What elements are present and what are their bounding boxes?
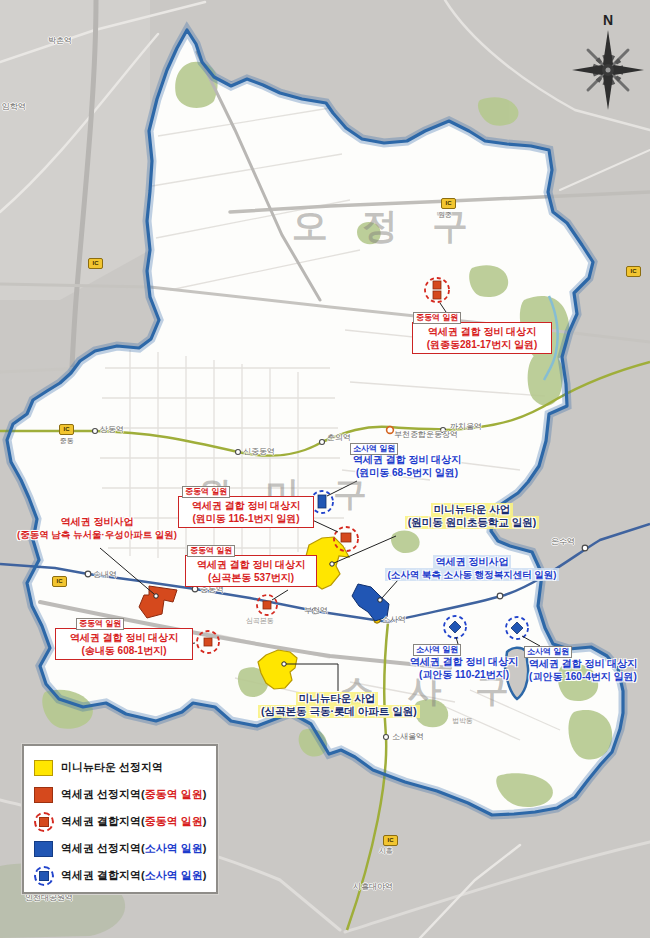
legend-swatch-blue [34,841,53,857]
ic-badge-siheung: IC [383,835,398,846]
callout-goean110-line1: 역세권 결합 정비 대상지 [404,655,524,668]
callout-wonmi68: 역세권 결합 정비 대상지 (원미동 68-5번지 일원) [346,453,468,479]
callout-simgok537: 역세권 결합 정비 대상지 (심곡본동 537번지) [185,555,317,587]
ic-label-wonjong: 원종 [438,210,452,220]
legend-swatch-yellow [34,760,53,776]
callout-wonmi116-line2: (원미동 116-1번지 일원) [182,512,310,525]
ic-badge-seoun: IC [88,258,103,269]
callout-wonmi68-line2: (원미동 68-5번지 일원) [346,466,468,479]
callout-songnae608-line1: 역세권 결합 정비 대상지 [59,631,189,644]
ic-badge-east: IC [626,266,641,277]
callout-wonjong-line1: 역세권 결합 정비 대상지 [416,325,548,338]
callout-minitown-wonmi-line1: 미니뉴타운 사업 [431,503,513,516]
callout-sosa-north: 역세권 정비사업 (소사역 북측 소사동 행정복지센터 일원) [378,555,566,581]
tag-wonjong: 중동역 일원 [413,312,461,324]
tag-simgok537: 중동역 일원 [187,545,235,557]
callout-wonmi116: 역세권 결합 정비 대상지 (원미동 116-1번지 일원) [178,496,314,528]
callout-goean160-line1: 역세권 결합 정비 대상지 [516,657,650,670]
legend-swatch-orange [34,787,53,803]
station-label-siheungdaeya: 시흥대야역 [353,881,393,892]
station-label-bakchon: 박촌역 [48,35,72,46]
legend: 미니뉴타운 선정지역 역세권 선정지역(중동역 일원) 역세권 결합지역(중동역… [22,744,218,894]
callout-jungdong-south-line1: 역세권 정비사업 [12,515,182,528]
tag-goean110: 소사역 일원 [413,644,461,656]
callout-sosa-north-line2: (소사역 북측 소사동 행정복지센터 일원) [385,568,560,581]
callout-sosa-north-line1: 역세권 정비사업 [433,555,512,568]
legend-swatch-blue-circle [34,866,54,886]
station-label-songnae: 송내역 [93,569,117,580]
ic-label-siheung: 시흥 [379,846,393,856]
station-label-chunui: 춘의역 [327,432,351,443]
tag-wonmi116: 중동역 일원 [182,486,230,498]
legend-item-jungdong-combined: 역세권 결합지역(중동역 일원) [34,808,216,835]
legend-item-sosa-combined: 역세권 결합지역(소사역 일원) [34,862,216,889]
callout-songnae608-line2: (송내동 608-1번지) [59,644,189,657]
area-label-beombakdong: 범박동 [452,716,473,726]
north-label: N [570,12,646,28]
callout-wonjong-line2: (원종동281-17번지 일원) [416,338,548,351]
tag-goean160: 소사역 일원 [524,646,572,658]
map-screenshot: 오 정 구 원 미 구 소 사 구 심곡본동 범박동 박촌역 임학역 상동역 신… [0,0,650,938]
callout-jungdong-south-line2: (중동역 남측 뉴서울·우성아파트 일원) [12,528,182,541]
callout-wonmi116-line1: 역세권 결합 정비 대상지 [182,499,310,512]
compass-icon [570,28,646,124]
station-label-kkachiul: 까치울역 [450,421,482,432]
station-label-sangdong: 상동역 [100,424,124,435]
ic-badge-wonjong: IC [441,198,456,209]
ic-badge-jungdong: IC [59,424,74,435]
callout-minitown-simgok: 미니뉴타운 사업 (심곡본동 극동·롯데 아파트 일원) [258,692,416,718]
tag-wonmi68: 소사역 일원 [350,443,398,455]
callout-goean160-line2: (괴안동 160-4번지 일원) [516,670,650,683]
compass: N [570,12,646,124]
callout-simgok537-line2: (심곡본동 537번지) [189,571,313,584]
callout-songnae608: 역세권 결합 정비 대상지 (송내동 608-1번지) [55,628,193,660]
callout-minitown-simgok-line2: (심곡본동 극동·롯데 아파트 일원) [258,705,420,718]
tag-songnae608: 중동역 일원 [76,618,124,630]
station-label-onsu: 온수역 [551,536,575,547]
station-label-sosa: 소사역 [382,614,406,625]
legend-item-jungdong-selected: 역세권 선정지역(중동역 일원) [34,781,216,808]
ic-badge-songnae: IC [52,576,67,587]
ic-label-jungdong: 중동 [60,436,74,446]
station-label-sosaeul: 소새울역 [392,731,424,742]
callout-minitown-wonmi: 미니뉴타운 사업 (원미동 원미초등학교 일원) [388,503,556,529]
stadium-transfer-dot [387,427,394,434]
area-label-simgokbondong: 심곡본동 [246,616,274,626]
callout-goean110: 역세권 결합 정비 대상지 (괴안동 110-21번지) [404,655,524,681]
callout-goean110-line2: (괴안동 110-21번지) [404,668,524,681]
legend-item-minitown: 미니뉴타운 선정지역 [34,754,216,781]
callout-minitown-wonmi-line2: (원미동 원미초등학교 일원) [405,516,539,529]
callout-simgok537-line1: 역세권 결합 정비 대상지 [189,558,313,571]
station-label-stadium: 부천종합운동장역 [394,429,458,440]
callout-wonjong: 역세권 결합 정비 대상지 (원종동281-17번지 일원) [412,322,552,354]
legend-swatch-red-circle [34,812,54,832]
station-label-imhak: 임학역 [2,101,26,112]
callout-goean160: 역세권 결합 정비 대상지 (괴안동 160-4번지 일원) [516,657,650,683]
callout-jungdong-south: 역세권 정비사업 (중동역 남측 뉴서울·우성아파트 일원) [12,515,182,541]
legend-item-sosa-selected: 역세권 선정지역(소사역 일원) [34,835,216,862]
station-label-bucheon: 부천역 [304,605,328,616]
callout-minitown-simgok-line1: 미니뉴타운 사업 [296,692,378,705]
station-label-sinjungdong: 신중동역 [243,446,275,457]
